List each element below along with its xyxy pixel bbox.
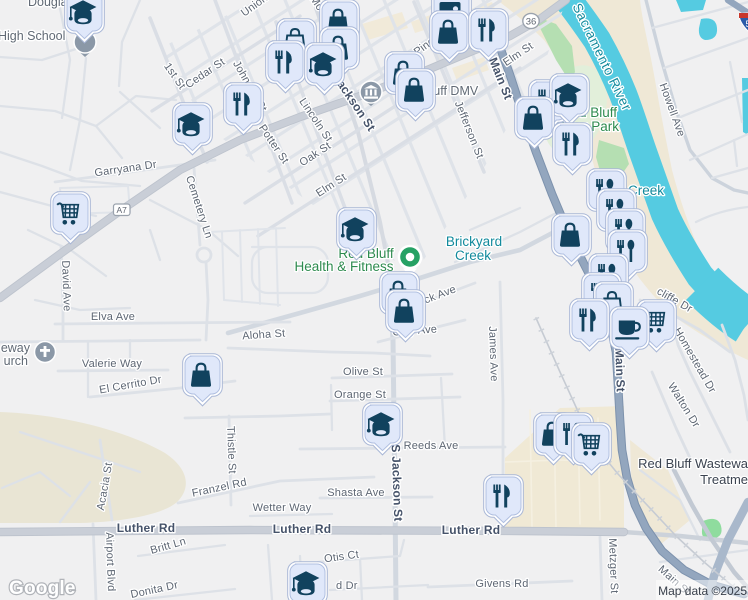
- svg-text:Metzger St: Metzger St: [606, 538, 620, 594]
- svg-text:Orange St: Orange St: [334, 389, 386, 401]
- svg-text:Luther Rd: Luther Rd: [273, 522, 331, 536]
- svg-text:Health & Fitness: Health & Fitness: [294, 259, 393, 274]
- svg-text:A7: A7: [116, 205, 127, 215]
- svg-text:S Jackson St: S Jackson St: [389, 444, 406, 522]
- svg-text:Map data ©2025: Map data ©2025: [658, 584, 747, 598]
- svg-text:36: 36: [526, 17, 537, 28]
- svg-text:Creek: Creek: [455, 248, 491, 263]
- svg-text:Treatme: Treatme: [700, 472, 748, 487]
- svg-text:urch: urch: [4, 354, 28, 368]
- svg-text:James Ave: James Ave: [486, 326, 500, 382]
- svg-text:Luther Rd: Luther Rd: [442, 523, 500, 537]
- svg-text:Red Bluff Wastewa: Red Bluff Wastewa: [638, 456, 748, 471]
- svg-text:Airport Blvd: Airport Blvd: [103, 532, 117, 592]
- svg-text:High School: High School: [0, 29, 65, 43]
- svg-text:d Dr: d Dr: [336, 580, 358, 592]
- svg-text:Olive St: Olive St: [343, 366, 383, 378]
- svg-text:Google: Google: [9, 578, 76, 599]
- svg-text:Luther Rd: Luther Rd: [117, 521, 175, 535]
- svg-text:Valerie Way: Valerie Way: [82, 358, 143, 370]
- svg-text:Elva Ave: Elva Ave: [91, 311, 135, 323]
- svg-text:Thistle St: Thistle St: [224, 426, 238, 474]
- svg-text:Givens Rd: Givens Rd: [475, 578, 528, 590]
- svg-text:David Ave: David Ave: [59, 260, 73, 312]
- svg-text:eway: eway: [1, 341, 31, 355]
- svg-text:Brickyard: Brickyard: [446, 234, 502, 249]
- svg-text:Reeds Ave: Reeds Ave: [404, 440, 459, 452]
- svg-text:Shasta Ave: Shasta Ave: [327, 487, 384, 499]
- svg-text:Wetter Way: Wetter Way: [253, 502, 312, 514]
